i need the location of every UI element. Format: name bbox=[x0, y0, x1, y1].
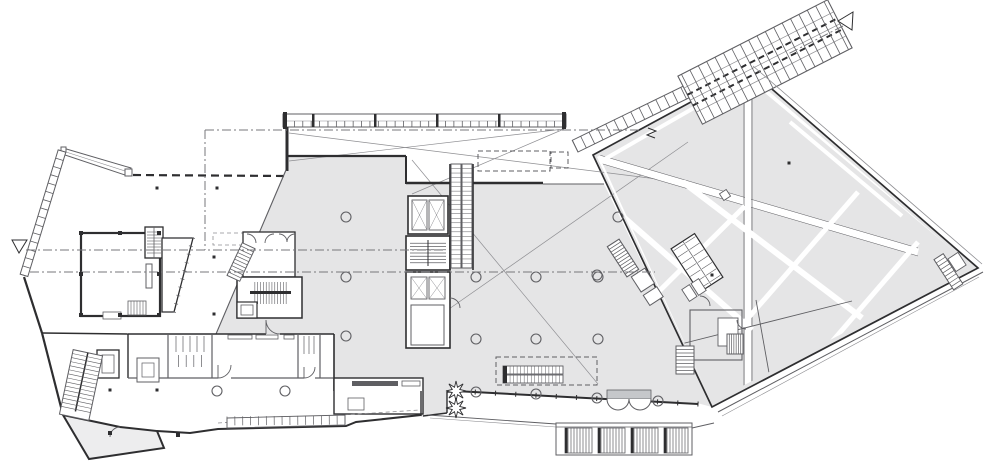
hardware-mark bbox=[213, 256, 216, 259]
canopy-post bbox=[436, 114, 439, 127]
canopy-post bbox=[312, 114, 315, 127]
toilet-stalls bbox=[299, 336, 319, 354]
auditorium-podium bbox=[146, 264, 152, 288]
column bbox=[212, 386, 222, 396]
core-lower bbox=[406, 272, 450, 348]
elevator-cab bbox=[102, 355, 114, 373]
column bbox=[280, 386, 290, 396]
stair-start bbox=[631, 428, 634, 453]
void-dashed-box bbox=[213, 233, 243, 245]
hardware-mark bbox=[711, 274, 714, 277]
escalator bbox=[503, 375, 563, 383]
node-mark bbox=[118, 313, 122, 317]
floor-plan-svg bbox=[0, 0, 1000, 468]
node-mark bbox=[79, 313, 83, 317]
toilet-stalls bbox=[171, 355, 209, 367]
canopy-endcap bbox=[562, 112, 566, 129]
section-marker bbox=[12, 240, 27, 253]
stair-start bbox=[598, 428, 601, 453]
upper-edge-dashed bbox=[133, 175, 286, 176]
node-mark bbox=[157, 272, 161, 276]
wing-stair bbox=[676, 346, 694, 374]
terrace-edge bbox=[692, 423, 714, 428]
info-counter bbox=[352, 381, 398, 386]
west-wall bbox=[42, 333, 63, 415]
hardware-mark bbox=[176, 433, 180, 437]
node-mark bbox=[157, 231, 161, 235]
west-wall bbox=[24, 277, 42, 333]
hardware-mark bbox=[788, 162, 791, 165]
office-furniture bbox=[256, 335, 278, 339]
hardware-mark bbox=[108, 431, 112, 435]
node-mark bbox=[118, 231, 122, 235]
auditorium-steps bbox=[128, 301, 146, 315]
office-furniture bbox=[228, 335, 252, 339]
node-mark bbox=[79, 272, 83, 276]
hardware-mark bbox=[216, 187, 219, 190]
stair-start bbox=[565, 428, 568, 453]
info-desk bbox=[348, 398, 364, 410]
void-dashed-box bbox=[551, 152, 568, 168]
canopy-post bbox=[498, 114, 501, 127]
canopy-endcap bbox=[283, 112, 287, 129]
node-mark bbox=[79, 231, 83, 235]
door-arc bbox=[218, 365, 231, 378]
entry-mat bbox=[607, 390, 651, 399]
equipment bbox=[142, 363, 154, 377]
entry-door-fan bbox=[629, 399, 651, 410]
hardware-mark bbox=[213, 313, 216, 316]
entry-door-fan bbox=[607, 399, 629, 410]
office-furniture bbox=[284, 335, 294, 339]
stair-start bbox=[664, 428, 667, 453]
escalator-cap bbox=[503, 366, 507, 383]
hardware-mark bbox=[156, 187, 159, 190]
wedge-node bbox=[125, 169, 132, 176]
core-upper bbox=[408, 196, 448, 234]
hardware-mark bbox=[156, 389, 159, 392]
node-mark bbox=[157, 313, 161, 317]
escalator bbox=[462, 164, 472, 268]
canopy-post bbox=[374, 114, 377, 127]
hardware-mark bbox=[109, 389, 112, 392]
trapezoid-room bbox=[162, 238, 193, 312]
roof-canopy bbox=[283, 114, 566, 127]
escalator bbox=[451, 164, 461, 268]
revolving-door bbox=[446, 398, 466, 418]
elevator bbox=[237, 302, 257, 318]
floor-plan bbox=[0, 0, 1000, 468]
door-arc bbox=[304, 367, 315, 378]
porch-floor bbox=[63, 415, 164, 459]
toilet-stalls bbox=[169, 336, 211, 352]
wedge-canopy-line bbox=[66, 152, 128, 172]
info-counter bbox=[402, 381, 420, 386]
wing-stair bbox=[727, 334, 743, 354]
block-top-wall bbox=[42, 333, 128, 334]
west-facade-ladder bbox=[20, 150, 66, 277]
stair-landing-bar bbox=[250, 291, 291, 294]
escalator bbox=[503, 366, 563, 374]
